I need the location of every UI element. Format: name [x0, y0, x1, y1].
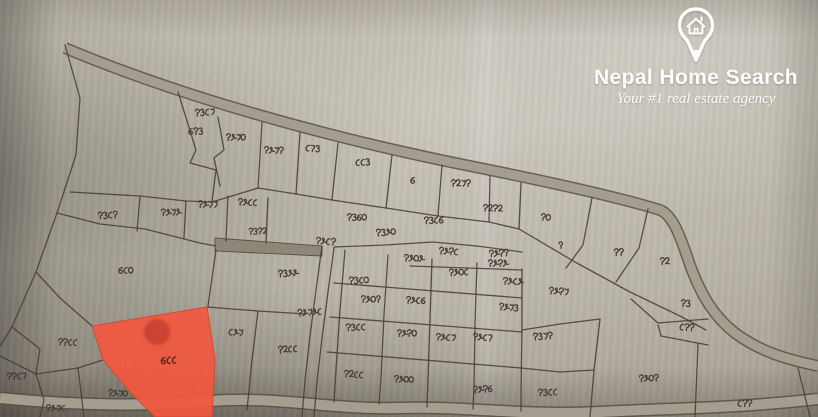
- parcel-boundary-line: [519, 183, 521, 229]
- digit-glyph: [269, 147, 275, 153]
- digit-glyph: [356, 324, 359, 330]
- digit-glyph: [98, 212, 102, 219]
- house-glyph: [688, 18, 705, 34]
- digit-glyph: [421, 298, 425, 304]
- digit-glyph: [459, 269, 464, 275]
- digit-glyph: [362, 214, 366, 220]
- parcel-label: [483, 204, 502, 211]
- digit-glyph: [394, 375, 398, 382]
- digit-glyph: [306, 145, 309, 151]
- parcel-label: [316, 237, 335, 245]
- parcel-label: [541, 213, 550, 220]
- parcel-boundary-line: [327, 352, 521, 368]
- parcel-boundary-line: [314, 248, 334, 417]
- digit-glyph: [402, 330, 407, 336]
- digit-glyph: [553, 389, 556, 395]
- parcel-boundary-line: [521, 269, 522, 411]
- digit-glyph: [488, 386, 492, 392]
- digit-glyph: [429, 217, 433, 223]
- digit-glyph: [478, 334, 484, 340]
- digit-glyph: [316, 237, 320, 244]
- parcel-boundary-line: [334, 250, 345, 402]
- parcel-boundary-line: [302, 246, 322, 417]
- digit-glyph: [364, 277, 369, 283]
- parcel-boundary-line: [207, 307, 306, 314]
- digit-glyph: [113, 390, 119, 396]
- digit-glyph: [108, 212, 111, 218]
- digit-glyph: [510, 304, 514, 310]
- digit-glyph: [351, 324, 355, 330]
- parcel-label: [58, 338, 76, 345]
- digit-glyph: [293, 346, 296, 352]
- digit-glyph: [229, 329, 232, 335]
- digit-glyph: [362, 296, 366, 303]
- digit-glyph: [462, 180, 465, 186]
- parcel-label: [346, 323, 364, 330]
- parcel-boundary-line: [36, 272, 92, 326]
- digit-glyph: [124, 267, 127, 273]
- parcel-label: [98, 211, 117, 219]
- parcel-label: [227, 134, 246, 141]
- digit-glyph: [489, 250, 493, 257]
- digit-glyph: [58, 338, 62, 345]
- digit-glyph: [371, 296, 375, 302]
- digit-glyph: [406, 296, 410, 303]
- digit-glyph: [129, 267, 133, 273]
- digit-glyph: [439, 247, 443, 254]
- digit-glyph: [361, 324, 364, 330]
- digit-glyph: [404, 254, 408, 261]
- parcel-boundary-line: [658, 325, 708, 345]
- digit-glyph: [63, 339, 67, 346]
- parcel-label: [452, 180, 471, 187]
- digit-glyph: [211, 109, 215, 115]
- digit-glyph: [253, 200, 256, 206]
- parcel-label: [344, 370, 362, 378]
- digit-glyph: [346, 324, 350, 331]
- parcel-label: [639, 374, 658, 381]
- digit-glyph: [349, 371, 353, 377]
- digit-glyph: [353, 214, 356, 220]
- digit-glyph: [318, 309, 321, 315]
- digit-glyph: [195, 109, 199, 116]
- digit-glyph: [503, 260, 508, 266]
- parcel-boundary-line: [0, 45, 80, 346]
- parcel-boundary-line: [631, 299, 658, 323]
- parcel-label: [499, 303, 518, 311]
- digit-glyph: [416, 297, 419, 303]
- parcel-label: [549, 287, 568, 295]
- parcel-boundary-line: [208, 250, 216, 306]
- parcel-boundary-line: [590, 319, 600, 417]
- parcel-label: [538, 388, 556, 395]
- digit-glyph: [359, 277, 362, 283]
- parcel-label: [473, 333, 492, 341]
- parcel-label: [7, 372, 26, 379]
- digit-glyph: [214, 201, 217, 207]
- parcel-boundary-line: [798, 368, 810, 417]
- digit-glyph: [538, 389, 542, 396]
- digit-glyph: [308, 309, 312, 315]
- parcel-label: [424, 216, 443, 223]
- digit-glyph: [361, 159, 364, 165]
- parcel-label: [489, 260, 509, 267]
- digit-glyph: [238, 198, 242, 205]
- parcel-label: [278, 345, 296, 353]
- digit-glyph: [233, 329, 239, 335]
- digit-glyph: [321, 238, 327, 244]
- parcel-boundary-line: [616, 209, 648, 282]
- parcel-label: [348, 214, 367, 221]
- digit-glyph: [409, 377, 414, 383]
- parcel-label: [264, 146, 283, 153]
- digit-glyph: [661, 258, 665, 265]
- digit-glyph: [456, 180, 460, 186]
- digit-glyph: [239, 330, 243, 336]
- digit-glyph: [398, 330, 402, 337]
- digit-glyph: [354, 277, 358, 283]
- brand-watermark: Nepal Home Search Your #1 real estate ag…: [582, 6, 810, 108]
- digit-glyph: [288, 346, 291, 352]
- parcel-label: [119, 267, 133, 273]
- digit-glyph: [209, 201, 212, 207]
- parcel-boundary-line: [332, 143, 338, 200]
- digit-glyph: [231, 134, 236, 140]
- parcel-label: [411, 178, 415, 184]
- digit-glyph: [543, 389, 547, 395]
- digit-glyph: [538, 333, 542, 340]
- parcel-boundary-line: [184, 201, 186, 238]
- digit-glyph: [464, 269, 467, 275]
- digit-glyph: [17, 373, 20, 379]
- digit-glyph: [649, 375, 654, 381]
- digit-glyph: [348, 214, 352, 221]
- digit-glyph: [279, 147, 283, 154]
- digit-glyph: [546, 215, 551, 221]
- digit-glyph: [407, 330, 411, 337]
- digit-glyph: [404, 376, 409, 382]
- parcel-label: [356, 159, 370, 166]
- digit-glyph: [123, 391, 128, 397]
- digit-glyph: [331, 238, 335, 245]
- parcel-boundary-line: [658, 319, 708, 323]
- parcel-label: [680, 323, 694, 331]
- digit-glyph: [366, 159, 370, 166]
- digit-glyph: [434, 217, 437, 223]
- parcel-boundary-line: [70, 192, 212, 202]
- digit-glyph: [119, 390, 122, 396]
- digit-glyph: [499, 249, 503, 256]
- digit-glyph: [161, 209, 165, 216]
- digit-glyph: [518, 279, 524, 285]
- parcel-label: [238, 198, 256, 205]
- parcel-label: [394, 375, 413, 382]
- parcel-boundary-line: [36, 360, 103, 374]
- digit-glyph: [357, 215, 361, 221]
- parcel-boundary-line: [489, 176, 490, 222]
- digit-glyph: [302, 309, 308, 315]
- digit-glyph: [559, 242, 563, 249]
- digit-glyph: [498, 205, 502, 211]
- digit-glyph: [533, 333, 537, 340]
- digit-glyph: [446, 334, 449, 340]
- digit-glyph: [548, 332, 552, 339]
- digit-glyph: [264, 146, 268, 153]
- parcel-boundary-line: [0, 356, 36, 374]
- digit-glyph: [449, 269, 453, 276]
- digit-glyph: [200, 109, 204, 116]
- digit-glyph: [119, 268, 123, 274]
- parcel-boundary-line: [12, 327, 40, 374]
- digit-glyph: [73, 340, 76, 346]
- digit-glyph: [311, 145, 315, 151]
- digit-glyph: [254, 228, 257, 234]
- digit-glyph: [424, 217, 428, 224]
- parcel-boundary-line: [427, 259, 432, 407]
- parcel-label: [108, 389, 127, 396]
- digit-glyph: [466, 180, 470, 187]
- digit-glyph: [381, 229, 385, 236]
- digit-glyph: [444, 248, 450, 254]
- digit-glyph: [419, 256, 425, 262]
- parcel-label: [449, 268, 467, 275]
- parcel-boundary-line: [438, 165, 442, 216]
- digit-glyph: [12, 373, 16, 380]
- digit-glyph: [359, 372, 362, 378]
- digit-glyph: [411, 178, 415, 184]
- parcel-label: [661, 258, 670, 265]
- digit-glyph: [349, 277, 353, 284]
- digit-glyph: [483, 204, 487, 211]
- brand-tagline: Your #1 real estate agency: [582, 91, 810, 108]
- digit-glyph: [376, 229, 380, 236]
- digit-glyph: [172, 209, 175, 215]
- digit-glyph: [288, 270, 294, 276]
- digit-glyph: [483, 385, 487, 392]
- digit-glyph: [680, 324, 683, 330]
- digit-glyph: [549, 287, 553, 294]
- digit-glyph: [414, 255, 419, 261]
- digit-glyph: [439, 217, 443, 223]
- digit-glyph: [489, 260, 493, 267]
- digit-glyph: [499, 303, 503, 310]
- parcel-label: [376, 228, 395, 236]
- digit-glyph: [449, 248, 453, 255]
- parcel-boundary-line: [522, 319, 600, 330]
- digit-glyph: [22, 373, 26, 379]
- parcel-boundary-line: [266, 198, 268, 243]
- digit-glyph: [565, 289, 569, 295]
- digit-glyph: [278, 346, 282, 353]
- digit-glyph: [356, 160, 359, 166]
- parcel-boundary-line: [258, 122, 262, 188]
- road-strip-label: [249, 228, 267, 235]
- digit-glyph: [686, 300, 690, 306]
- digit-glyph: [326, 239, 329, 245]
- digit-glyph: [248, 199, 251, 205]
- digit-glyph: [452, 180, 456, 187]
- parcel-label: [362, 296, 381, 303]
- digit-glyph: [436, 333, 440, 340]
- parcel-label: [278, 269, 298, 277]
- digit-glyph: [559, 288, 563, 295]
- digit-glyph: [275, 147, 278, 153]
- digit-glyph: [241, 134, 245, 140]
- parcel-boundary-line: [386, 155, 392, 208]
- digit-glyph: [103, 212, 107, 219]
- digit-glyph: [344, 370, 348, 377]
- parcel-boundary-line: [521, 368, 594, 372]
- parcel-boundary-line: [379, 255, 388, 404]
- parcel-label: [306, 145, 320, 152]
- digit-glyph: [685, 324, 689, 331]
- digit-glyph: [503, 277, 507, 284]
- digit-glyph: [454, 249, 457, 255]
- digit-glyph: [377, 296, 380, 303]
- digit-glyph: [619, 249, 623, 256]
- digit-glyph: [258, 228, 262, 234]
- road-strip: [215, 238, 322, 256]
- parcel-label: [349, 276, 368, 283]
- digit-glyph: [654, 374, 658, 381]
- digit-glyph: [227, 134, 231, 141]
- digit-glyph: [108, 389, 112, 396]
- parcel-label: [229, 329, 243, 336]
- digit-glyph: [263, 228, 267, 234]
- parcel-label: [533, 332, 552, 340]
- digit-glyph: [541, 213, 545, 220]
- parcel-label: [404, 254, 424, 262]
- digit-glyph: [441, 334, 447, 340]
- digit-glyph: [493, 205, 497, 212]
- digit-glyph: [513, 278, 516, 284]
- digit-glyph: [354, 372, 357, 378]
- digit-glyph: [493, 260, 498, 266]
- location-marker: [144, 319, 170, 345]
- digit-glyph: [504, 304, 510, 310]
- digit-glyph: [316, 145, 320, 152]
- digit-glyph: [508, 278, 514, 284]
- parcel-label: [681, 300, 690, 307]
- digit-glyph: [514, 305, 518, 312]
- digit-glyph: [7, 373, 11, 380]
- digit-glyph: [205, 109, 208, 115]
- digit-glyph: [243, 199, 249, 205]
- parcel-label: [161, 208, 181, 216]
- parcel-boundary-line: [226, 196, 228, 241]
- digit-glyph: [665, 258, 669, 264]
- parcel-boundary-line: [296, 133, 300, 194]
- digit-glyph: [614, 249, 618, 256]
- digit-glyph: [544, 333, 548, 339]
- parcel-label: [298, 308, 321, 316]
- digit-glyph: [483, 335, 486, 341]
- digit-glyph: [199, 128, 203, 134]
- digit-glyph: [452, 334, 455, 340]
- home-location-pin-icon: [674, 6, 718, 64]
- digit-glyph: [283, 270, 287, 277]
- digit-glyph: [391, 229, 396, 235]
- digit-glyph: [278, 270, 282, 277]
- parcel-boundary-line: [212, 188, 519, 229]
- brand-name: Nepal Home Search: [582, 66, 810, 90]
- digit-glyph: [411, 297, 417, 303]
- digit-glyph: [412, 330, 416, 336]
- digit-glyph: [498, 260, 502, 267]
- digit-glyph: [283, 346, 287, 352]
- digit-glyph: [166, 209, 172, 215]
- listing-map-screenshot: Nepal Home Search Your #1 real estate ag…: [0, 0, 818, 417]
- parcel-boundary-line: [137, 196, 140, 231]
- parcel-label: [436, 333, 455, 340]
- digit-glyph: [554, 288, 560, 294]
- digit-glyph: [639, 375, 643, 382]
- digit-glyph: [488, 335, 492, 341]
- digit-glyph: [194, 128, 198, 135]
- parcel-label: [439, 247, 457, 255]
- digit-glyph: [176, 209, 182, 215]
- digit-glyph: [548, 389, 551, 395]
- parcel-label: [614, 249, 623, 256]
- parcel-label: [559, 242, 563, 249]
- parcel-boundary-line: [334, 242, 522, 252]
- digit-glyph: [249, 228, 253, 234]
- parcel-boundary-line: [566, 198, 592, 268]
- digit-glyph: [690, 324, 694, 331]
- parcel-label: [195, 108, 214, 116]
- digit-glyph: [293, 270, 299, 276]
- parcel-label: [473, 385, 492, 393]
- parcel-label: [406, 296, 425, 303]
- digit-glyph: [681, 300, 685, 307]
- digit-glyph: [237, 134, 240, 140]
- parcel-label: [398, 330, 417, 337]
- digit-glyph: [298, 309, 302, 316]
- digit-glyph: [68, 339, 71, 345]
- parcel-label: [503, 277, 523, 285]
- digit-glyph: [113, 211, 117, 218]
